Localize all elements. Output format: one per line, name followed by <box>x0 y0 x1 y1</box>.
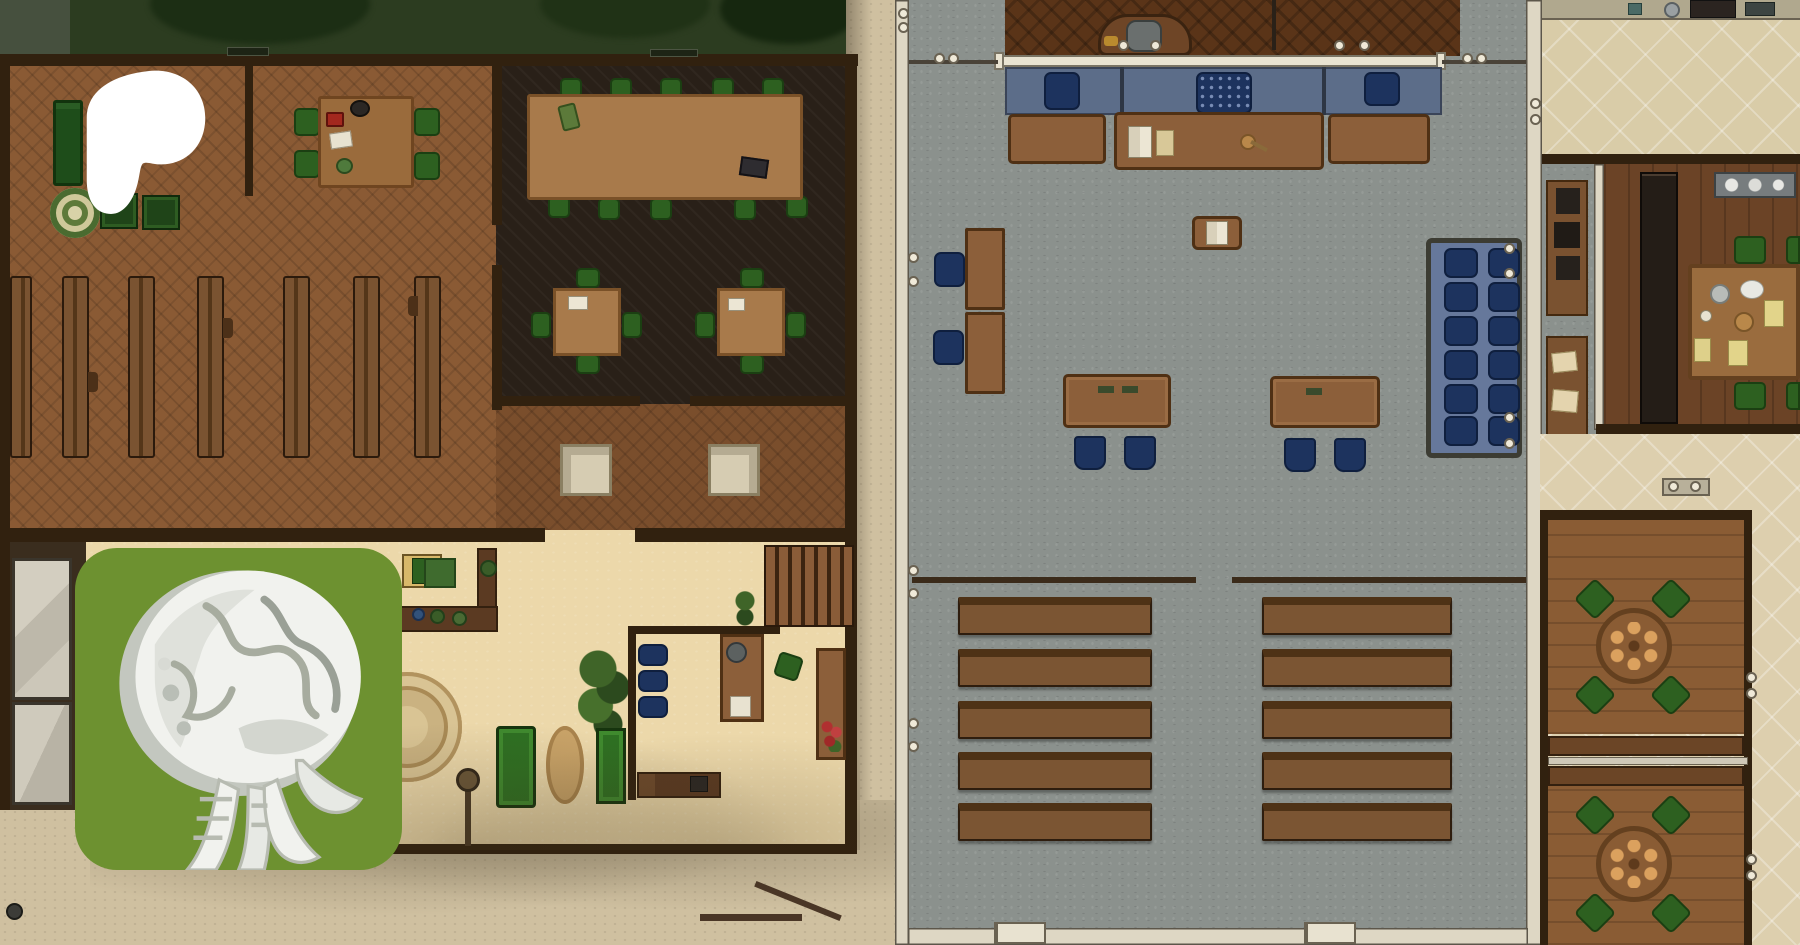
platform-divider <box>1120 67 1124 115</box>
water-pump <box>6 903 23 920</box>
white-card <box>728 298 745 311</box>
pew <box>62 276 89 458</box>
gold-ornament <box>1104 36 1118 46</box>
door-knob <box>1746 870 1757 881</box>
door-knob <box>908 565 919 576</box>
gallery-bench <box>958 649 1152 687</box>
bench-chair <box>1364 72 1400 106</box>
waiting-chair <box>638 644 668 666</box>
attorney-chair <box>1074 436 1106 470</box>
canvas-tarp <box>12 702 72 805</box>
pew <box>414 276 441 458</box>
lounge-study-wall <box>690 396 856 406</box>
door-knob <box>1150 40 1161 51</box>
gate-ring <box>1476 53 1487 64</box>
private-room-wall <box>1540 510 1752 520</box>
door-knob <box>1359 40 1370 51</box>
chair <box>531 312 551 338</box>
plant-pot <box>430 609 445 624</box>
gallery-bench <box>958 803 1152 841</box>
gallery-bench <box>958 701 1152 739</box>
green-mug <box>336 158 353 174</box>
patreon-logo-icon <box>78 64 214 222</box>
jury-chair <box>1444 248 1478 278</box>
white-paper <box>329 131 353 150</box>
dark-case <box>739 156 769 179</box>
wall-sign <box>650 49 698 57</box>
chair <box>1734 236 1766 264</box>
lamp-post <box>465 788 471 846</box>
jury-chair <box>1444 350 1478 380</box>
jury-rail-knob <box>1504 412 1515 423</box>
door-knob <box>1334 40 1345 51</box>
pew <box>353 276 380 458</box>
pew <box>128 276 155 458</box>
jury-rail-knob <box>1504 268 1515 279</box>
potted-plant <box>578 646 628 738</box>
gate-ring <box>934 53 945 64</box>
cup <box>1700 310 1712 322</box>
gallery-bench <box>958 597 1152 635</box>
open-book <box>1128 126 1152 158</box>
oval-rug <box>546 726 584 804</box>
bar-railing <box>912 577 1196 583</box>
witness-box <box>965 312 1005 394</box>
dark-box <box>1556 256 1580 280</box>
door-knob <box>908 588 919 599</box>
jury-chair <box>1444 416 1478 446</box>
placemat <box>1764 300 1784 327</box>
green-bench <box>496 726 536 808</box>
white-dish <box>1740 280 1764 299</box>
wall-sign <box>227 47 269 56</box>
gallery-bench <box>1262 803 1452 841</box>
bar-railing <box>1232 577 1526 583</box>
door-knob <box>1690 481 1701 492</box>
double-door <box>994 922 1046 944</box>
flower-vase <box>818 716 844 752</box>
white-table <box>560 444 612 496</box>
pew <box>197 276 224 458</box>
door-knob <box>1746 672 1757 683</box>
gallery-bench <box>1262 701 1452 739</box>
gallery-bench <box>1262 752 1452 790</box>
lectern-book <box>1206 221 1228 245</box>
black-pot <box>350 100 370 117</box>
hall-lounge-wall <box>492 62 502 225</box>
platform-divider <box>1322 67 1326 115</box>
chair <box>294 108 320 136</box>
corridor-east-wall <box>1594 164 1604 430</box>
chair <box>414 108 440 136</box>
pew <box>283 276 310 458</box>
hall-lounge-wall <box>492 265 502 410</box>
attorney-chair <box>1124 436 1156 470</box>
lounge-study-wall <box>496 396 640 406</box>
divider-rail <box>1548 757 1748 765</box>
chair <box>786 312 806 338</box>
plant-pot <box>734 590 756 626</box>
door-knob <box>1530 98 1541 109</box>
door-knob <box>898 22 909 33</box>
office-cabinet <box>637 772 721 798</box>
gallery-bench <box>1262 649 1452 687</box>
attorney-table <box>1270 376 1380 428</box>
jury-chair <box>1444 316 1478 346</box>
door-knob <box>1530 114 1541 125</box>
door-knob <box>908 718 919 729</box>
jury-chair <box>1488 350 1520 380</box>
chair <box>576 268 600 288</box>
chair <box>1786 382 1800 410</box>
plant-pot <box>452 611 467 626</box>
battlemap-scene <box>0 0 1800 945</box>
door-knob <box>908 276 919 287</box>
door-knob <box>898 8 909 19</box>
door-knob <box>908 741 919 752</box>
jury-chair <box>1444 384 1478 414</box>
place-settings <box>1610 840 1658 888</box>
placemat <box>1694 338 1711 362</box>
dining-sideboard <box>1714 172 1796 198</box>
plant-pot <box>480 560 497 577</box>
chair <box>576 354 600 374</box>
nameplate <box>1306 388 1322 395</box>
lamp-head <box>456 768 480 792</box>
dark-box <box>1554 222 1580 248</box>
courtroom-west-wall <box>895 0 909 945</box>
red-chest <box>326 112 344 127</box>
placemat <box>1728 340 1748 366</box>
chair <box>740 354 764 374</box>
office-wall <box>628 626 780 634</box>
centerpiece <box>1734 312 1754 332</box>
jury-rail-knob <box>1504 438 1515 449</box>
door-knob <box>1668 481 1679 492</box>
office-wall <box>628 626 636 800</box>
chair <box>1734 382 1766 410</box>
study-floor <box>496 404 856 530</box>
chair <box>695 312 715 338</box>
gate-ring <box>1462 53 1473 64</box>
stairs <box>764 545 854 627</box>
pot <box>1664 2 1680 18</box>
pew-armrest <box>88 372 98 392</box>
dining-south-wall <box>1596 424 1800 434</box>
west-wall <box>0 54 10 810</box>
clerk-desk <box>1008 114 1106 164</box>
gallery-bench <box>1262 597 1452 635</box>
clerk-desk <box>1328 114 1430 164</box>
bedroom-divider-wall <box>245 62 253 196</box>
bookshelf <box>1640 172 1678 424</box>
nameplate <box>1122 386 1138 393</box>
flag-pole <box>1272 0 1276 50</box>
papers <box>1551 351 1578 374</box>
divider-bench <box>1548 766 1744 786</box>
stove <box>1690 0 1736 18</box>
place-settings <box>1610 622 1658 670</box>
waiting-chair <box>638 696 668 718</box>
private-room-wall <box>1540 510 1548 945</box>
chair <box>414 152 440 180</box>
bench-railing <box>998 55 1442 67</box>
creator-brain-icon <box>75 548 402 870</box>
chair <box>1786 236 1800 264</box>
witness-chair <box>934 252 965 287</box>
witness-chair <box>933 330 964 365</box>
basin <box>1628 3 1642 15</box>
judge-dais <box>1005 0 1460 56</box>
gallery-bench <box>958 752 1152 790</box>
blue-pot <box>412 608 425 621</box>
dark-box <box>1556 188 1580 214</box>
dishes <box>1745 2 1775 16</box>
white-table <box>708 444 760 496</box>
attorney-table <box>1063 374 1171 428</box>
chair <box>598 198 620 220</box>
door-knob <box>1746 854 1757 865</box>
typewriter <box>690 776 708 792</box>
jury-rail-knob <box>1504 243 1515 254</box>
plate <box>1710 284 1730 304</box>
lobby-south-wall <box>340 844 857 854</box>
desk-chair <box>726 642 747 663</box>
white-paper <box>730 696 751 717</box>
chair <box>740 268 764 288</box>
double-door <box>1304 922 1356 944</box>
nameplate <box>1098 386 1114 393</box>
chair <box>622 312 642 338</box>
jury-chair <box>1488 282 1520 312</box>
bench-chair <box>1044 72 1080 110</box>
chair <box>294 150 320 178</box>
jury-chair <box>1444 282 1478 312</box>
gate-ring <box>948 53 959 64</box>
pew-armrest <box>223 318 233 338</box>
attorney-chair <box>1334 438 1366 472</box>
judge-bench-chair <box>1196 72 1252 114</box>
kitchen-south-wall <box>1542 154 1800 164</box>
east-wall <box>845 54 857 854</box>
jury-chair <box>1488 316 1520 346</box>
jury-chair <box>1488 384 1520 414</box>
chair <box>734 198 756 220</box>
papers <box>1156 130 1174 156</box>
green-planter <box>596 728 626 804</box>
pew-armrest <box>408 296 418 316</box>
study-lobby-wall <box>635 528 857 542</box>
green-side-table <box>424 558 456 588</box>
attorney-chair <box>1284 438 1316 472</box>
pew <box>10 276 32 458</box>
chair <box>650 198 672 220</box>
door-knob <box>1746 688 1757 699</box>
waiting-chair <box>638 670 668 692</box>
canvas-tarp <box>12 558 72 700</box>
door-knob <box>1118 40 1129 51</box>
hall-lobby-wall <box>0 528 545 542</box>
papers <box>1551 389 1579 413</box>
kitchen-floor <box>1542 0 1800 156</box>
door-knob <box>908 252 919 263</box>
witness-box <box>965 228 1005 310</box>
hitch-rail <box>700 914 802 921</box>
white-card <box>568 296 588 310</box>
divider-bench <box>1548 736 1744 756</box>
